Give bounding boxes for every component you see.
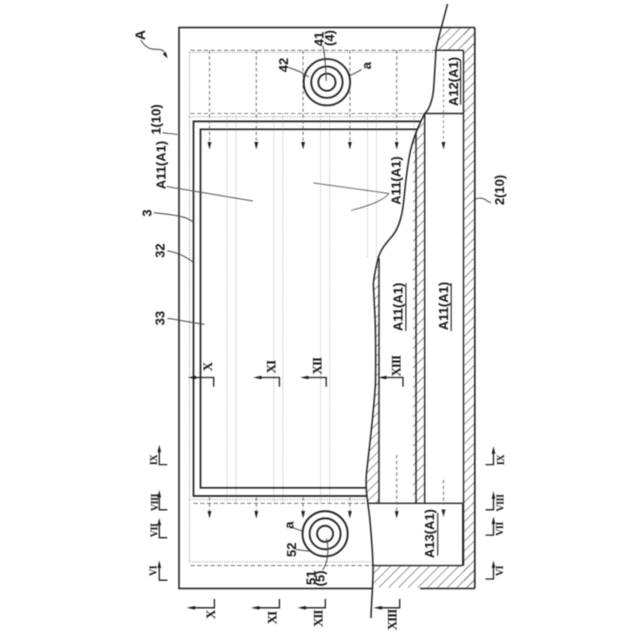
svg-text:XIII: XIII	[389, 355, 404, 377]
svg-text:VI: VI	[495, 565, 506, 576]
svg-text:A13(A1): A13(A1)	[422, 509, 437, 558]
svg-text:A11(A1): A11(A1)	[390, 283, 405, 331]
svg-text:33: 33	[153, 311, 168, 325]
svg-text:52: 52	[284, 543, 299, 557]
svg-text:XI: XI	[264, 611, 279, 624]
svg-text:VIII: VIII	[150, 493, 161, 511]
svg-text:A: A	[132, 30, 148, 40]
svg-text:VII: VII	[150, 523, 161, 537]
svg-text:a: a	[359, 61, 374, 69]
svg-text:(5): (5)	[313, 570, 328, 586]
svg-text:VIII: VIII	[495, 494, 506, 512]
svg-text:XII: XII	[310, 610, 325, 627]
svg-text:32: 32	[153, 243, 168, 257]
svg-text:A11(A1): A11(A1)	[436, 282, 451, 330]
svg-text:IX: IX	[149, 454, 160, 465]
svg-text:42: 42	[276, 58, 291, 72]
svg-text:A11(A1): A11(A1)	[153, 141, 168, 189]
svg-text:2(10): 2(10)	[492, 175, 507, 205]
svg-text:1(10): 1(10)	[148, 104, 163, 134]
svg-text:(4): (4)	[322, 30, 337, 46]
svg-text:IX: IX	[496, 454, 507, 465]
svg-text:A12(A1): A12(A1)	[446, 57, 461, 106]
svg-text:a: a	[281, 521, 296, 529]
svg-text:XII: XII	[310, 357, 325, 374]
svg-text:VI: VI	[149, 565, 160, 576]
svg-text:A11(A1): A11(A1)	[389, 156, 404, 204]
svg-text:VII: VII	[495, 522, 506, 536]
svg-text:3: 3	[139, 209, 154, 216]
svg-text:XI: XI	[263, 360, 278, 373]
svg-text:XIII: XIII	[385, 609, 400, 631]
